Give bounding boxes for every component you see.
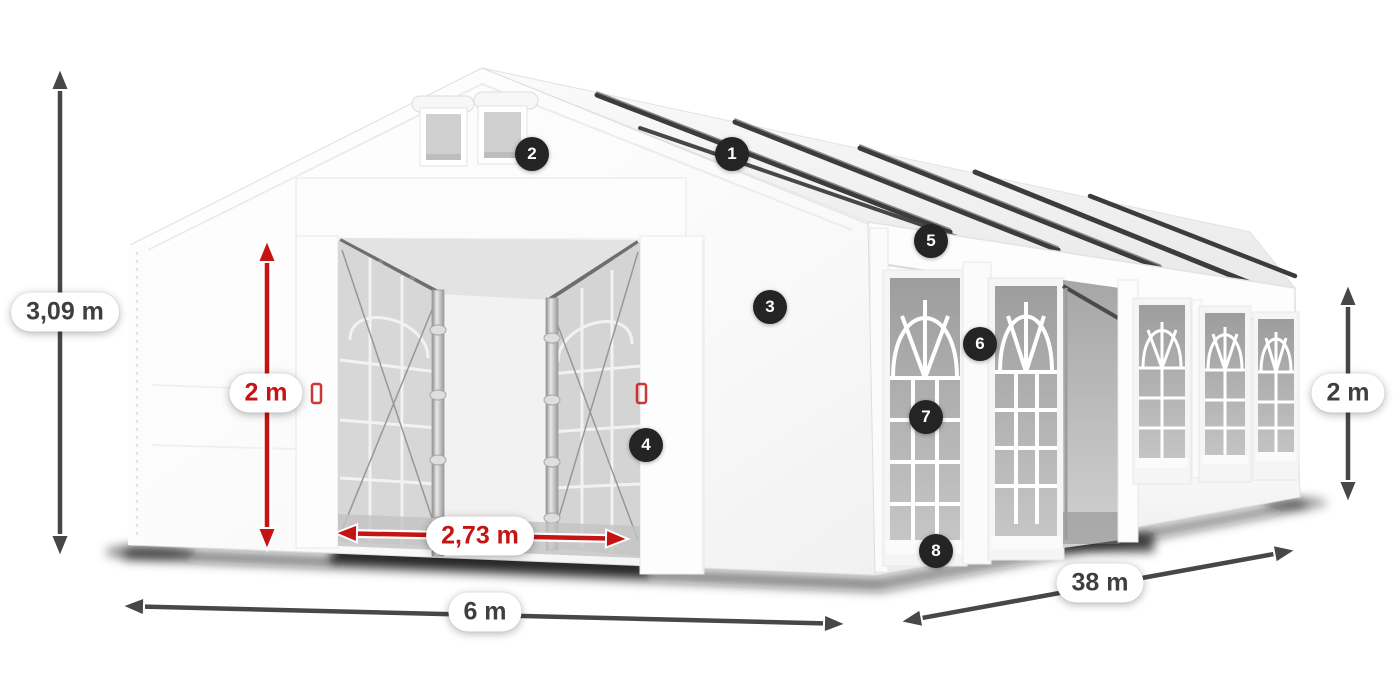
length-label: 38 m	[1057, 564, 1144, 603]
side-window-5	[1253, 312, 1299, 480]
marker-4: 4	[629, 428, 663, 462]
tent-dimension-diagram: 3,09 m 2 m 2,73 m 6 m 38 m 2 m 1 2 3 4 5…	[0, 0, 1400, 700]
total-height-label: 3,09 m	[11, 293, 119, 332]
side-window-2	[988, 278, 1064, 560]
entrance-width-label: 2,73 m	[426, 517, 534, 556]
side-window-4	[1199, 306, 1251, 482]
marker-6: 6	[963, 327, 997, 361]
marker-2: 2	[515, 137, 549, 171]
entrance-interior	[338, 238, 640, 558]
marker-1: 1	[715, 137, 749, 171]
marker-3: 3	[753, 290, 787, 324]
tent-illustration	[0, 0, 1400, 700]
side-strap	[963, 262, 991, 564]
entrance-height-label: 2 m	[229, 374, 302, 413]
marker-5: 5	[914, 224, 948, 258]
marker-8: 8	[919, 534, 953, 568]
span-width-label: 6 m	[448, 593, 521, 632]
side-window-3	[1133, 298, 1191, 484]
marker-7: 7	[909, 400, 943, 434]
side-door-opening	[1063, 280, 1138, 548]
side-height-label: 2 m	[1311, 374, 1384, 413]
